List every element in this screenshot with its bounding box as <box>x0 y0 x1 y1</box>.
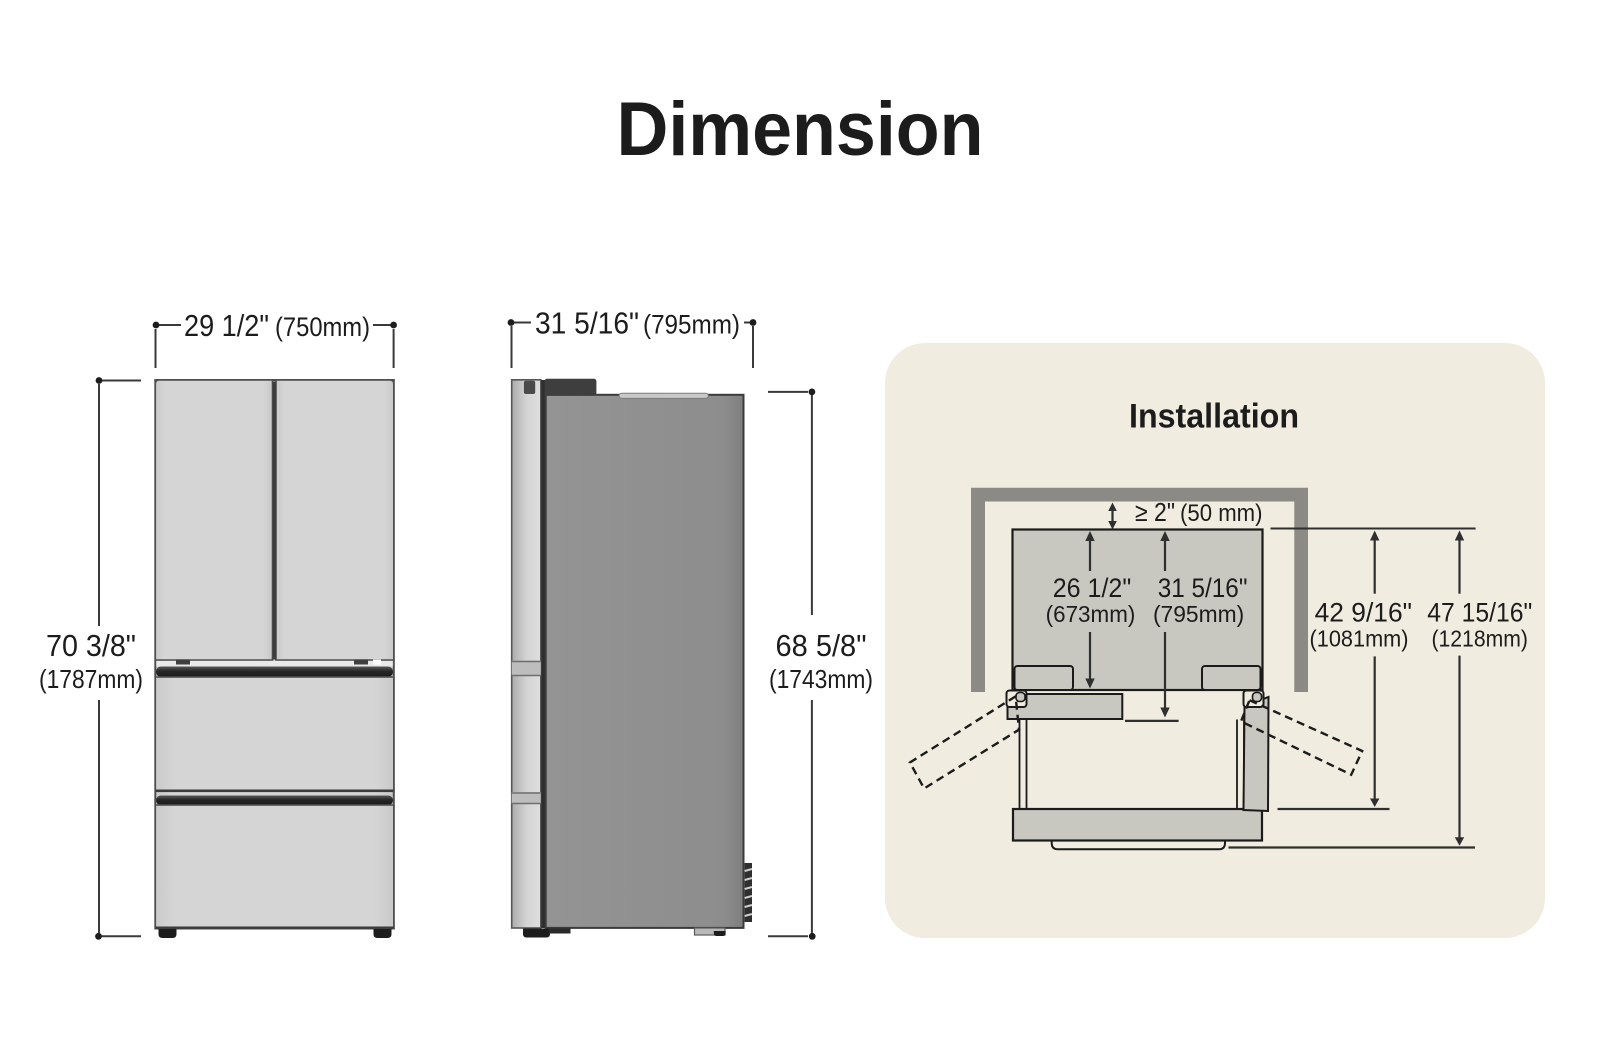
svg-text:29 1/2"(750mm): 29 1/2"(750mm) <box>184 308 370 343</box>
svg-text:31 5/16"(795mm): 31 5/16"(795mm) <box>535 306 740 341</box>
svg-text:47 15/16": 47 15/16" <box>1427 598 1532 628</box>
svg-text:(1787mm): (1787mm) <box>39 664 143 694</box>
svg-text:≥ 2"(50 mm): ≥ 2"(50 mm) <box>1135 497 1263 527</box>
svg-text:(1081mm): (1081mm) <box>1310 626 1409 652</box>
svg-text:31 5/16": 31 5/16" <box>1158 573 1248 603</box>
svg-text:42 9/16": 42 9/16" <box>1315 598 1412 628</box>
svg-text:Installation: Installation <box>1129 398 1299 436</box>
svg-text:Dimension: Dimension <box>617 87 984 172</box>
svg-text:(1218mm): (1218mm) <box>1431 626 1528 652</box>
svg-text:26 1/2": 26 1/2" <box>1053 573 1132 603</box>
svg-text:70 3/8": 70 3/8" <box>46 628 136 663</box>
svg-text:(1743mm): (1743mm) <box>769 664 873 694</box>
svg-text:68 5/8": 68 5/8" <box>776 628 867 663</box>
svg-text:(795mm): (795mm) <box>1153 601 1244 627</box>
svg-text:(673mm): (673mm) <box>1046 601 1136 627</box>
